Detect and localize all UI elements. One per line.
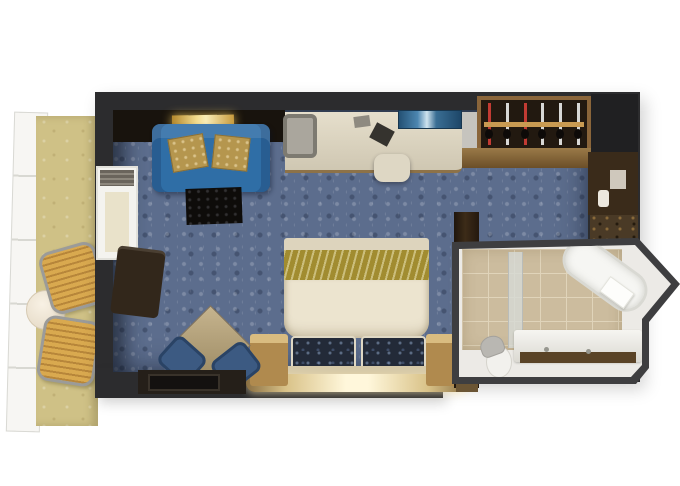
door-handle [598,190,609,207]
cabin-entry-door [588,152,638,215]
hanger [506,103,509,145]
faucet [544,347,549,352]
stateroom-floorplan [0,0,680,486]
desk-stool [374,154,410,182]
wardrobe-shelf [462,148,600,168]
tall-cabinet [591,94,638,152]
hanger [524,103,527,145]
hanger [577,103,580,145]
dark-rug [185,187,242,225]
vanity-wood-trim [520,352,636,363]
balcony-lounge-chair [35,314,103,388]
faucet [586,349,591,354]
desk-accessory [353,115,370,128]
balcony-door [96,166,138,260]
toilet [478,336,514,380]
hanger [488,103,491,145]
glass-shelf [398,110,462,129]
wardrobe-closet [477,96,591,152]
hanger [541,103,544,145]
sofa-pillow [167,133,208,173]
floor-mat [148,374,220,391]
hanger [559,103,562,145]
bed-duvet [284,280,429,338]
bathroom [452,236,680,386]
sofa-pillow [211,134,250,172]
armchair [110,245,166,318]
desk-chair [283,114,317,158]
door-plate [610,170,626,189]
bed-runner [284,250,429,280]
